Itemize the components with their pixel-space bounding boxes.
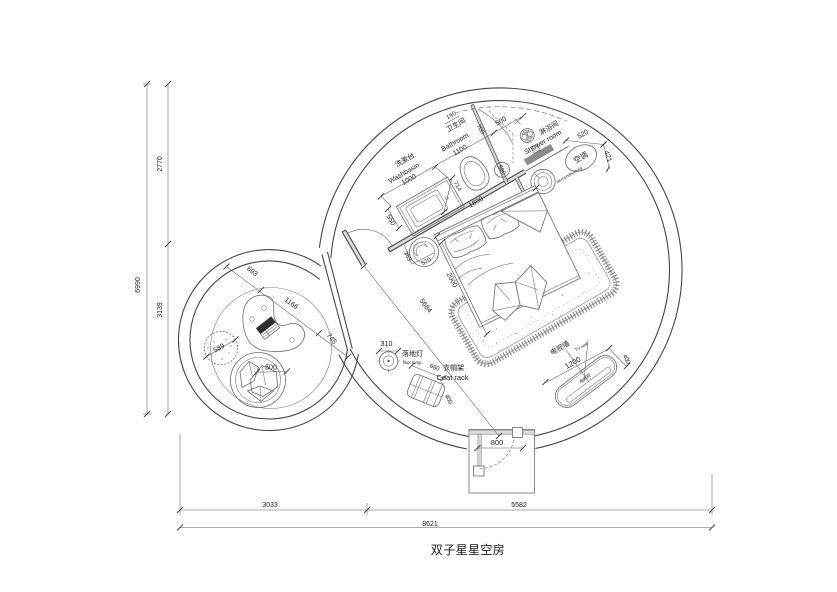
svg-text:5582: 5582 — [511, 502, 527, 509]
svg-text:6990: 6990 — [135, 277, 142, 293]
svg-text:500: 500 — [265, 365, 277, 372]
svg-text:floor lamp: floor lamp — [403, 360, 422, 365]
svg-text:2770: 2770 — [157, 156, 164, 172]
svg-text:800: 800 — [491, 438, 504, 447]
svg-text:3033: 3033 — [262, 502, 278, 509]
svg-text:Coat rack: Coat rack — [436, 373, 468, 382]
svg-text:310: 310 — [381, 341, 393, 348]
svg-text:8621: 8621 — [422, 521, 438, 528]
svg-text:衣帽架: 衣帽架 — [443, 363, 464, 372]
svg-text:3139: 3139 — [157, 302, 164, 318]
svg-text:落地灯: 落地灯 — [402, 349, 423, 358]
svg-text:双子星星空房: 双子星星空房 — [431, 542, 505, 557]
